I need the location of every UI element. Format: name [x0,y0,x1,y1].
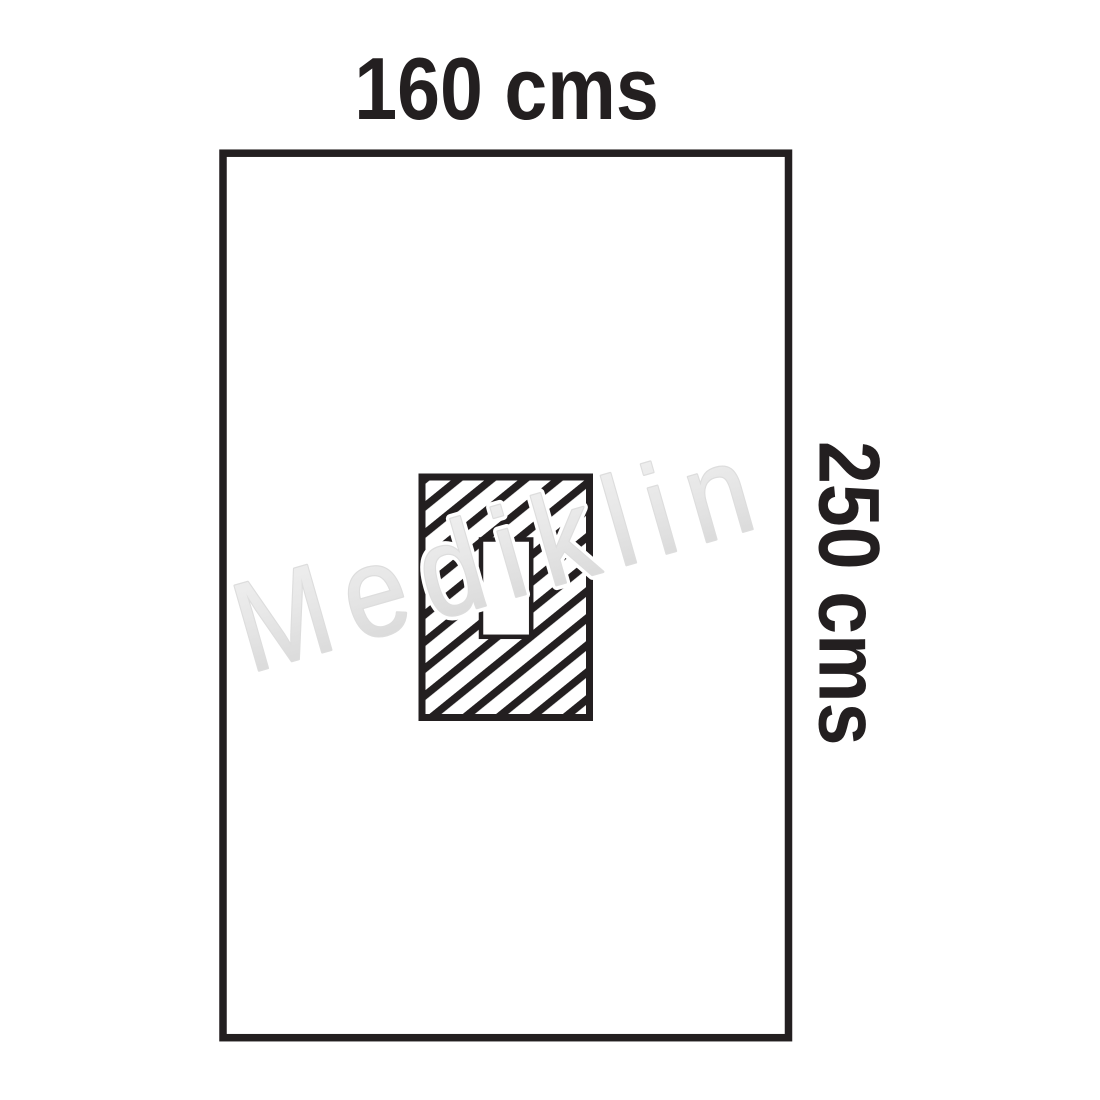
svg-text:160 cms: 160 cms [354,39,658,138]
svg-text:250 cms: 250 cms [801,441,897,746]
